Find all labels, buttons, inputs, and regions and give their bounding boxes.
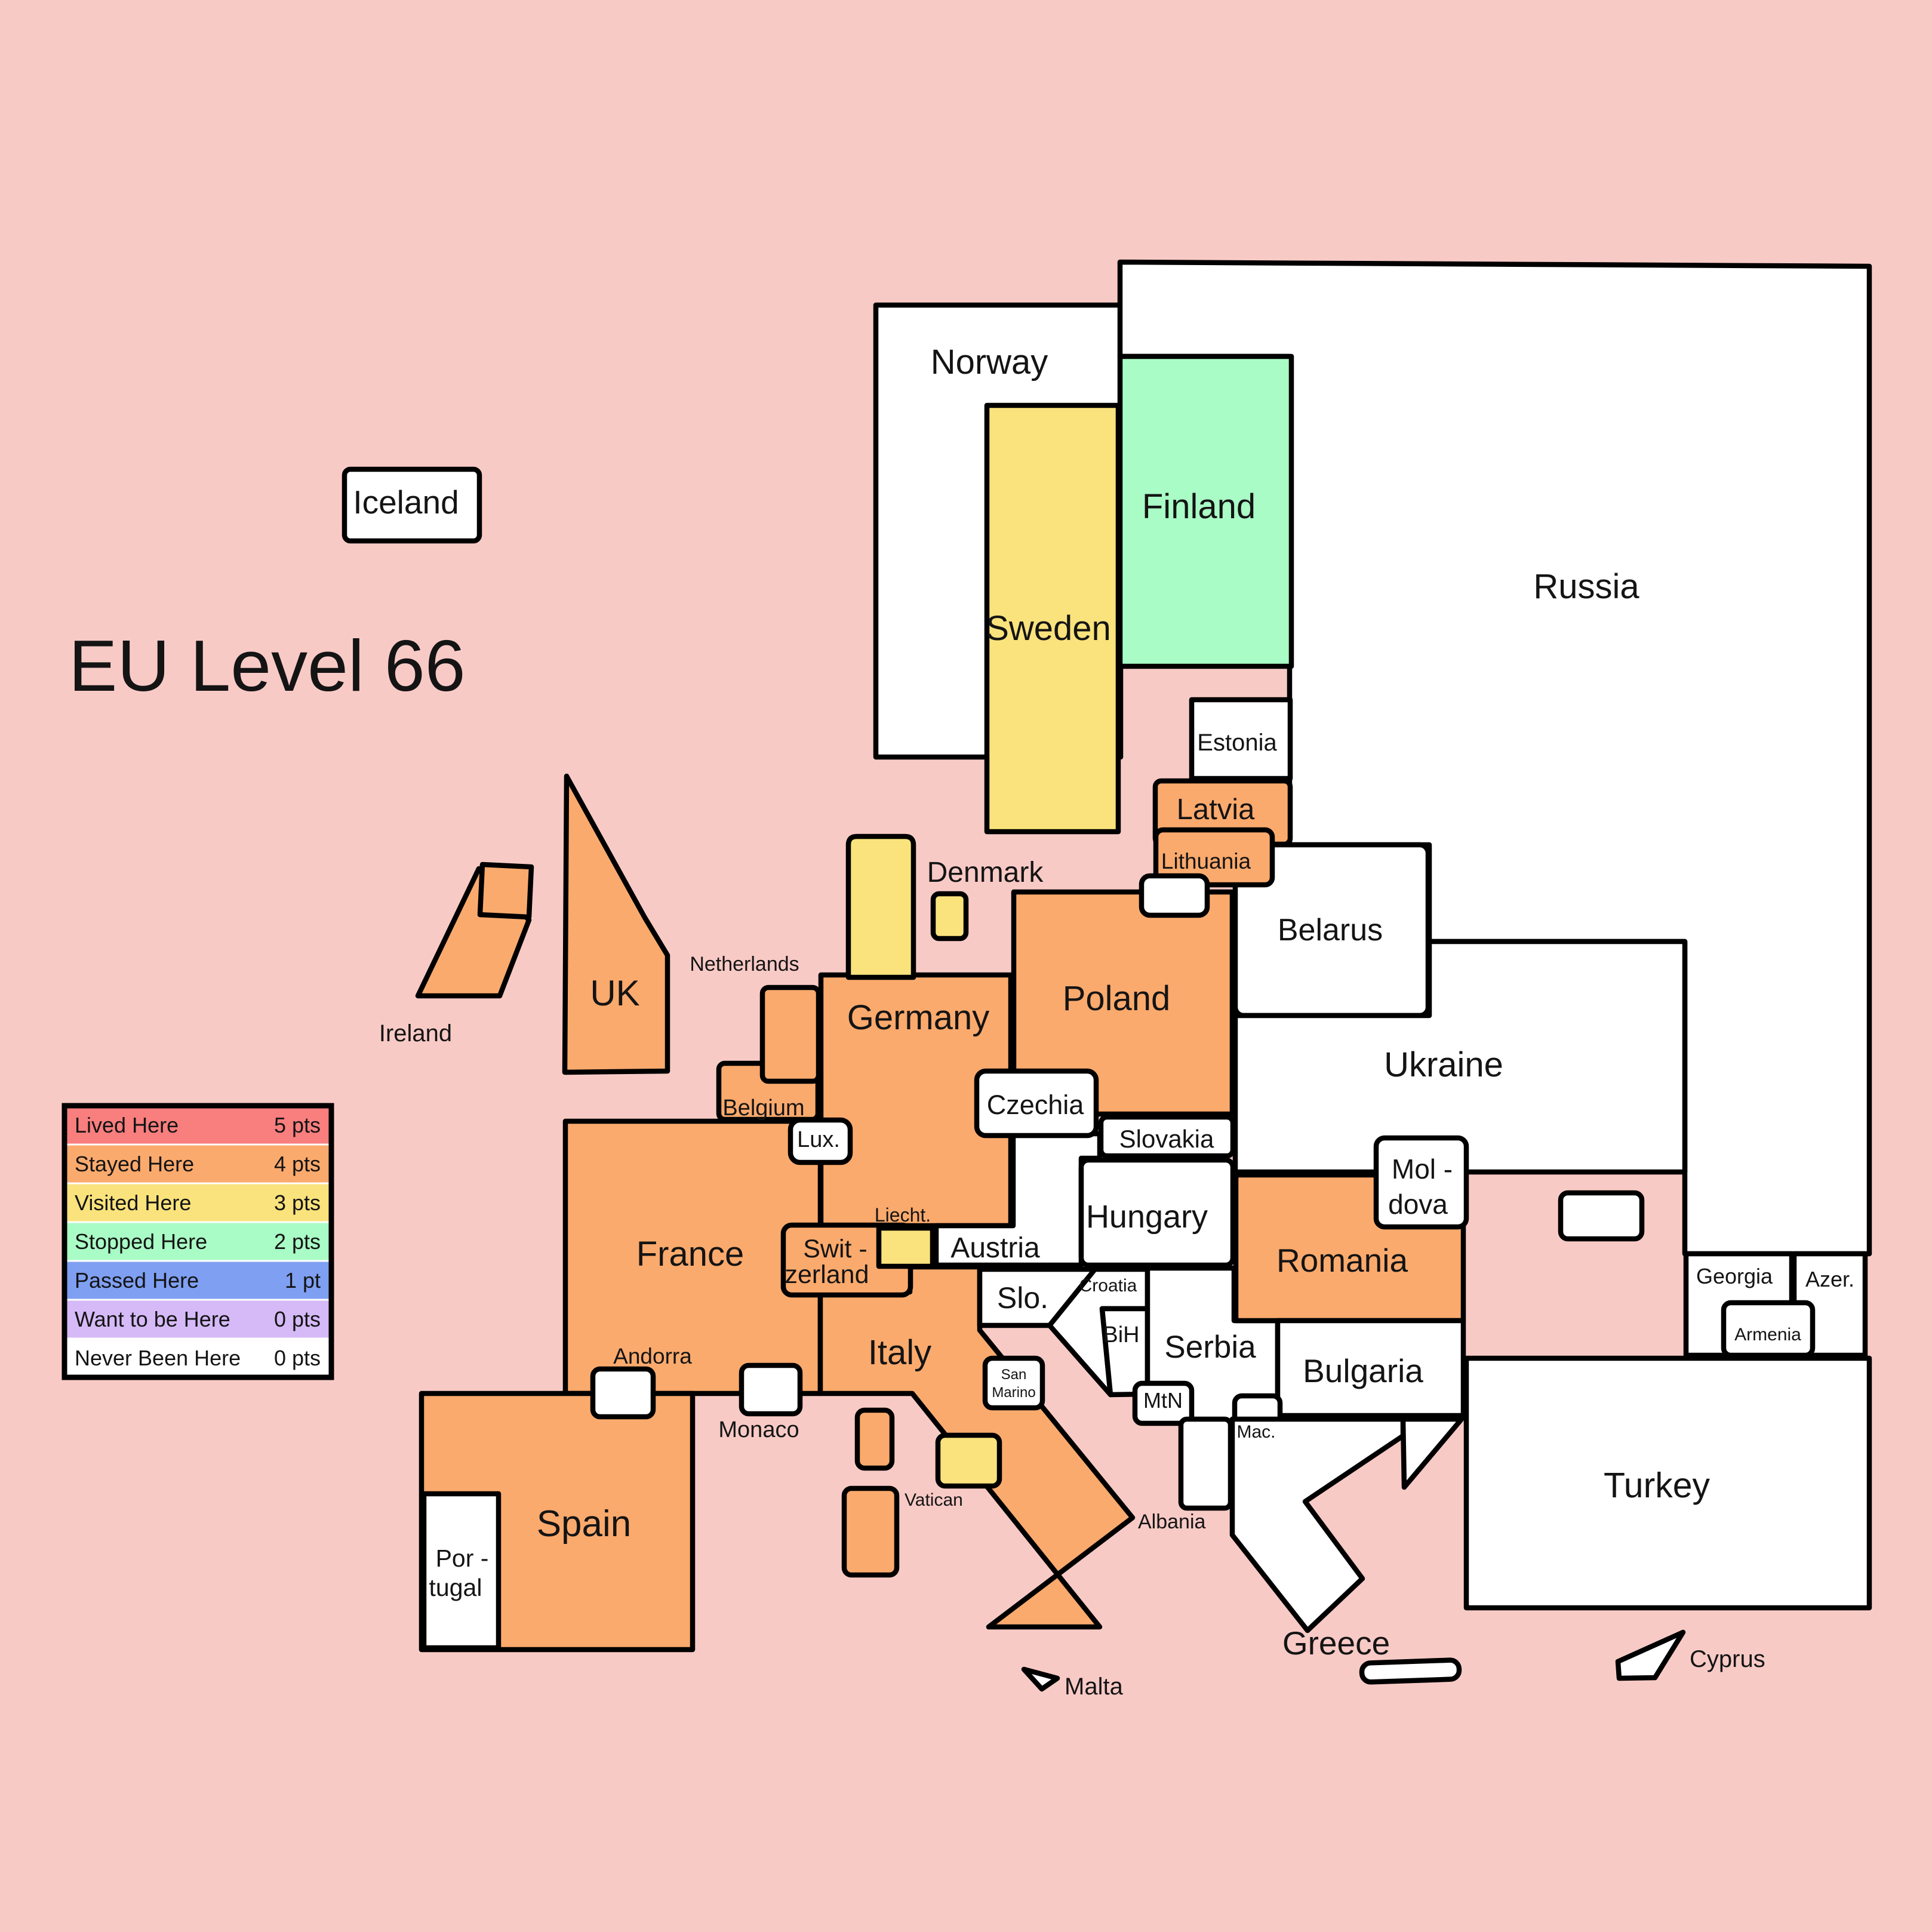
svg-text:Por -: Por -: [436, 1545, 489, 1572]
svg-text:5 pts: 5 pts: [274, 1113, 321, 1137]
svg-text:Serbia: Serbia: [1164, 1330, 1256, 1365]
svg-text:France: France: [636, 1235, 745, 1273]
svg-text:Liecht.: Liecht.: [875, 1204, 931, 1226]
svg-text:Armenia: Armenia: [1734, 1325, 1801, 1345]
svg-text:0 pts: 0 pts: [274, 1307, 321, 1331]
svg-text:Belgium: Belgium: [722, 1096, 804, 1121]
svg-text:3 pts: 3 pts: [274, 1190, 321, 1215]
svg-text:Slo.: Slo.: [997, 1281, 1048, 1315]
svg-text:Georgia: Georgia: [1696, 1264, 1773, 1288]
svg-text:Germany: Germany: [847, 998, 990, 1037]
svg-text:2 pts: 2 pts: [274, 1229, 321, 1254]
svg-text:1 pt: 1 pt: [285, 1268, 321, 1293]
svg-text:Stopped Here: Stopped Here: [75, 1229, 207, 1254]
svg-text:San: San: [1001, 1367, 1027, 1383]
svg-text:Romania: Romania: [1276, 1242, 1408, 1279]
svg-text:Cyprus: Cyprus: [1690, 1646, 1765, 1672]
svg-text:Mol -: Mol -: [1392, 1153, 1453, 1185]
svg-text:EU Level 66: EU Level 66: [69, 625, 466, 706]
svg-text:Netherlands: Netherlands: [690, 953, 799, 976]
svg-text:Lithuania: Lithuania: [1161, 849, 1251, 873]
svg-text:Finland: Finland: [1142, 487, 1256, 526]
svg-text:Malta: Malta: [1065, 1673, 1124, 1700]
svg-text:Monaco: Monaco: [718, 1417, 799, 1442]
svg-text:tugal: tugal: [429, 1574, 482, 1601]
svg-text:BiH: BiH: [1103, 1322, 1139, 1348]
svg-text:Poland: Poland: [1063, 979, 1171, 1018]
svg-text:Czechia: Czechia: [987, 1090, 1085, 1120]
svg-text:Turkey: Turkey: [1604, 1466, 1711, 1505]
svg-text:Italy: Italy: [868, 1333, 931, 1372]
svg-text:Andorra: Andorra: [613, 1344, 692, 1368]
svg-text:Visited Here: Visited Here: [75, 1190, 191, 1215]
svg-text:Never Been Here: Never Been Here: [75, 1346, 241, 1370]
svg-text:Azer.: Azer.: [1805, 1267, 1854, 1291]
svg-text:Russia: Russia: [1533, 567, 1639, 606]
svg-text:Estonia: Estonia: [1197, 730, 1277, 756]
svg-text:Want to be Here: Want to be Here: [75, 1307, 230, 1331]
svg-text:Sweden: Sweden: [986, 609, 1111, 648]
svg-text:Slovakia: Slovakia: [1119, 1125, 1214, 1153]
svg-text:Greece: Greece: [1282, 1625, 1390, 1662]
svg-text:Spain: Spain: [537, 1503, 632, 1545]
svg-text:4 pts: 4 pts: [274, 1152, 321, 1176]
svg-text:Bulgaria: Bulgaria: [1303, 1352, 1423, 1389]
svg-text:Iceland: Iceland: [353, 484, 459, 521]
svg-text:Latvia: Latvia: [1177, 793, 1256, 826]
svg-text:Belarus: Belarus: [1278, 913, 1383, 947]
svg-text:Vatican: Vatican: [905, 1490, 963, 1510]
svg-text:dova: dova: [1388, 1189, 1448, 1220]
svg-text:Hungary: Hungary: [1086, 1199, 1208, 1235]
svg-text:Denmark: Denmark: [927, 857, 1044, 888]
svg-text:Passed Here: Passed Here: [75, 1268, 199, 1293]
svg-text:Swit -: Swit -: [803, 1235, 867, 1263]
svg-text:Marino: Marino: [992, 1385, 1035, 1401]
svg-text:Stayed Here: Stayed Here: [75, 1152, 194, 1176]
svg-text:MtN: MtN: [1143, 1388, 1183, 1413]
svg-text:UK: UK: [590, 973, 639, 1013]
svg-text:0 pts: 0 pts: [274, 1346, 321, 1370]
svg-text:Ukraine: Ukraine: [1384, 1045, 1503, 1084]
svg-text:zerland: zerland: [785, 1260, 869, 1289]
svg-text:Albania: Albania: [1138, 1510, 1206, 1533]
svg-text:Lux.: Lux.: [797, 1127, 840, 1152]
svg-text:Austria: Austria: [950, 1232, 1040, 1264]
svg-text:Mac.: Mac.: [1236, 1422, 1275, 1442]
svg-text:Norway: Norway: [931, 343, 1048, 382]
svg-text:Ireland: Ireland: [379, 1020, 452, 1047]
svg-text:Lived Here: Lived Here: [75, 1113, 179, 1137]
svg-text:Croatia: Croatia: [1079, 1276, 1137, 1296]
